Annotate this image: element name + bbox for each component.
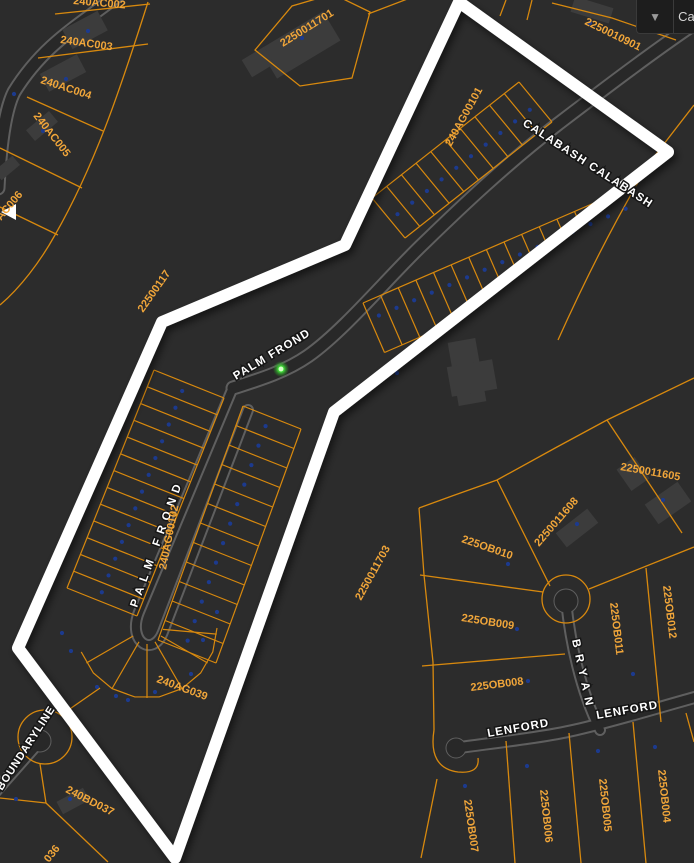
parcel-point-marker <box>394 306 398 310</box>
map-application: CALABASH CALABASHPALM FRONDPALM FRONDBOU… <box>0 0 694 863</box>
parcel-label: 225OB004 <box>655 769 673 824</box>
parcel-point-marker <box>114 694 118 698</box>
parcel-point-marker <box>201 638 205 642</box>
parcel-point-marker <box>14 797 18 801</box>
parcel-point-marker <box>189 672 193 676</box>
parcel-label: 240AG039 <box>155 674 209 703</box>
parcel-point-marker <box>242 483 246 487</box>
parcel-point-marker <box>528 108 532 112</box>
parcel-point-marker <box>180 389 184 393</box>
parcel-point-marker <box>463 784 467 788</box>
parcel-label: 225OB010 <box>460 533 514 562</box>
parcel-point-marker <box>484 143 488 147</box>
toolbar-label-fragment[interactable]: Ca <box>674 9 694 24</box>
parcel-point-marker <box>588 222 592 226</box>
parcel-point-marker <box>395 212 399 216</box>
parcel-point-marker <box>575 522 579 526</box>
parcel-point-marker <box>140 490 144 494</box>
parcel-point-marker <box>483 268 487 272</box>
parcel-point-marker <box>207 580 211 584</box>
parcel-point-marker <box>447 283 451 287</box>
parcel-label: 225OB007 <box>461 799 480 853</box>
parcel-point-marker <box>606 214 610 218</box>
parcel-label: 22500117 <box>136 268 174 314</box>
parcel-lines-layer <box>0 0 694 863</box>
parcel-point-marker <box>214 561 218 565</box>
map-canvas[interactable]: CALABASH CALABASHPALM FRONDPALM FRONDBOU… <box>0 0 694 863</box>
parcel-point-marker <box>263 424 267 428</box>
parcel-point-marker <box>412 298 416 302</box>
parcel-point-marker <box>526 679 530 683</box>
parcel-point-marker <box>410 201 414 205</box>
parcel-point-marker <box>454 166 458 170</box>
parcel-point-marker <box>256 444 260 448</box>
parcel-point-marker <box>106 573 110 577</box>
parcel-point-marker <box>661 498 665 502</box>
parcel-point-marker <box>513 119 517 123</box>
parcel-point-marker <box>160 439 164 443</box>
parcel-point-marker <box>518 252 522 256</box>
parcel-point-marker <box>235 502 239 506</box>
parcel-point-marker <box>69 649 73 653</box>
parcel-label: 240AC003 <box>60 34 114 53</box>
parcel-point-marker <box>440 177 444 181</box>
parcel-label: 225OB008 <box>470 676 524 694</box>
parcel-point-marker <box>525 764 529 768</box>
parcel-label: 2250010901 <box>583 16 643 54</box>
parcel-label: 225OB012 <box>660 585 678 639</box>
parcel-point-marker <box>506 562 510 566</box>
parcel-label: 225OB005 <box>596 778 613 832</box>
parcel-point-marker <box>100 590 104 594</box>
parcel-point-marker <box>133 506 137 510</box>
parcel-point-marker <box>377 313 381 317</box>
parcel-label: 225OB006 <box>537 789 554 843</box>
toolbar-widget: ▼ Ca <box>636 0 694 34</box>
parcel-point-marker <box>193 619 197 623</box>
parcel-point-marker <box>127 523 131 527</box>
parcel-point-marker <box>64 77 68 81</box>
parcel-point-marker <box>498 131 502 135</box>
parcel-point-marker <box>120 540 124 544</box>
parcel-point-marker <box>153 456 157 460</box>
parcel-point-marker <box>624 207 628 211</box>
parcel-point-marker <box>500 260 504 264</box>
parcel-point-marker <box>60 631 64 635</box>
parcel-point-marker <box>228 522 232 526</box>
parcel-point-marker <box>126 698 130 702</box>
parcel-point-marker <box>515 627 519 631</box>
parcel-point-marker <box>153 690 157 694</box>
parcel-point-marker <box>147 473 151 477</box>
selected-point-marker <box>273 361 289 377</box>
parcel-point-marker <box>12 92 16 96</box>
parcel-point-marker <box>249 463 253 467</box>
street-label: BOUNDARYLINE <box>0 704 58 793</box>
parcel-point-marker <box>465 275 469 279</box>
parcel-point-marker <box>596 749 600 753</box>
parcel-point-marker <box>215 610 219 614</box>
parcel-label: 240AG00101 <box>443 85 485 148</box>
parcel-point-marker <box>200 600 204 604</box>
chevron-down-icon[interactable]: ▼ <box>637 0 673 33</box>
parcel-point-marker <box>425 189 429 193</box>
parcel-point-marker <box>86 29 90 33</box>
parcel-point-marker <box>631 672 635 676</box>
parcel-point-marker <box>167 422 171 426</box>
parcel-point-marker <box>653 745 657 749</box>
parcel-label: 036 <box>42 843 63 863</box>
parcel-point-marker <box>469 154 473 158</box>
parcel-point-marker <box>186 639 190 643</box>
parcel-label: 225OB009 <box>461 612 515 632</box>
parcel-label: 2250011703 <box>353 544 393 603</box>
parcel-point-marker <box>95 685 99 689</box>
parcel-point-marker <box>173 406 177 410</box>
parcel-point-marker <box>113 557 117 561</box>
parcel-point-marker <box>430 291 434 295</box>
parcel-label: 225OB011 <box>607 602 625 656</box>
street-label: BRYAN <box>569 638 596 713</box>
parcel-point-marker <box>221 541 225 545</box>
